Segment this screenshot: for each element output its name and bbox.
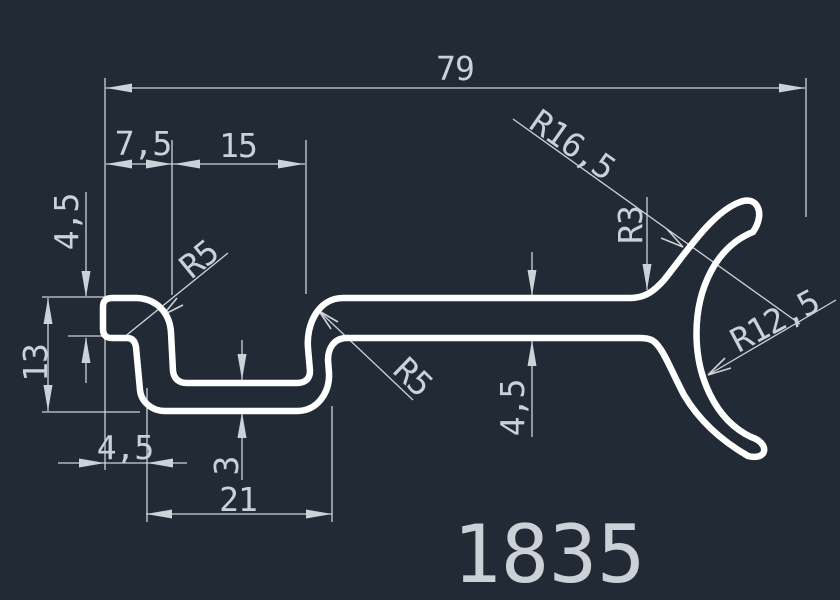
cad-drawing: 79 7,5 15 4,5 13 4,5 21 3 4,5 R5 R5 R16,… — [0, 0, 840, 600]
dim-label-slot-width: 15 — [219, 126, 257, 165]
dim-label-tab-thickness: 4,5 — [47, 194, 86, 251]
part-number: 1835 — [453, 508, 646, 600]
cad-drawing-canvas[interactable]: 79 7,5 15 4,5 13 4,5 21 3 4,5 R5 R5 R16,… — [0, 0, 840, 600]
dim-label-radius-fillet: R3 — [611, 206, 650, 244]
dim-label-base-offset: 4,5 — [97, 428, 154, 467]
dim-label-base-width: 21 — [219, 480, 257, 519]
dim-label-overall-depth: 13 — [16, 344, 55, 382]
dim-label-total-width: 79 — [436, 49, 474, 88]
dim-label-tab-offset: 7,5 — [115, 124, 172, 163]
dim-label-base-thickness: 3 — [207, 457, 246, 476]
dim-label-arm-thickness: 4,5 — [493, 380, 532, 437]
